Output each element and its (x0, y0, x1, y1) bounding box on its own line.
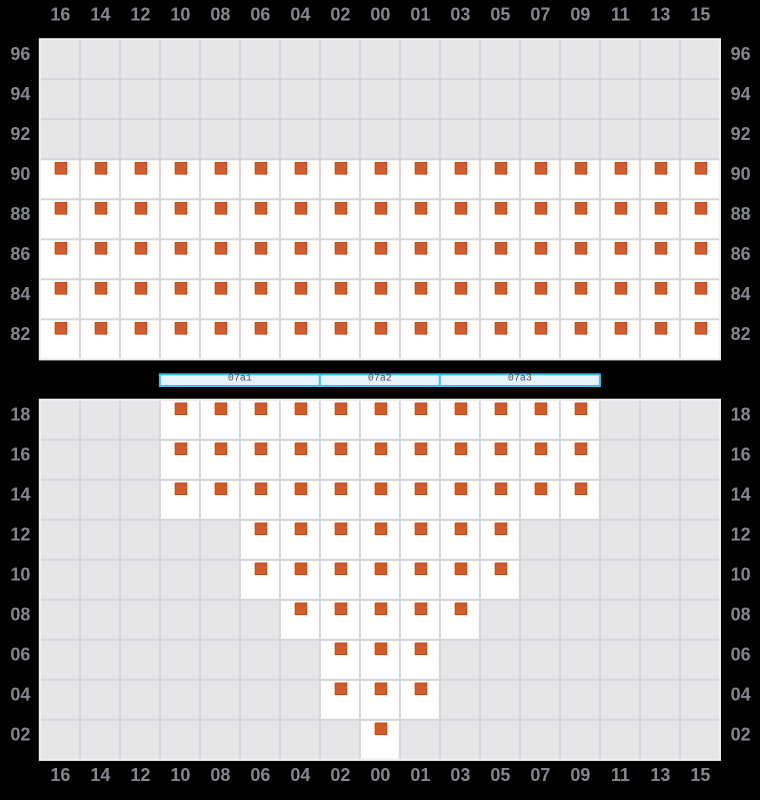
svg-text:00: 00 (370, 4, 390, 24)
svg-text:88: 88 (731, 204, 751, 224)
svg-text:08: 08 (10, 604, 30, 624)
svg-text:06: 06 (10, 644, 30, 664)
svg-text:06: 06 (731, 644, 751, 664)
svg-text:18: 18 (731, 404, 751, 424)
svg-text:08: 08 (210, 4, 230, 24)
svg-text:05: 05 (490, 765, 510, 785)
svg-text:11: 11 (611, 4, 630, 24)
svg-text:18: 18 (10, 404, 30, 424)
svg-text:01: 01 (410, 765, 430, 785)
svg-text:05: 05 (490, 4, 510, 24)
svg-text:10: 10 (170, 4, 190, 24)
svg-text:12: 12 (731, 524, 751, 544)
svg-text:92: 92 (10, 124, 30, 144)
svg-text:07a1: 07a1 (228, 373, 252, 384)
svg-text:14: 14 (90, 4, 110, 24)
svg-text:07a3: 07a3 (508, 373, 532, 384)
svg-text:09: 09 (570, 765, 590, 785)
svg-text:00: 00 (370, 765, 390, 785)
svg-text:08: 08 (210, 765, 230, 785)
svg-text:01: 01 (410, 4, 430, 24)
svg-text:96: 96 (10, 44, 30, 64)
svg-text:84: 84 (10, 284, 30, 304)
svg-text:15: 15 (690, 4, 710, 24)
svg-text:13: 13 (650, 4, 670, 24)
svg-text:16: 16 (10, 444, 30, 464)
svg-text:15: 15 (690, 765, 710, 785)
svg-text:82: 82 (10, 324, 30, 344)
svg-text:14: 14 (90, 765, 110, 785)
svg-text:10: 10 (731, 564, 751, 584)
svg-text:10: 10 (170, 765, 190, 785)
svg-text:04: 04 (731, 684, 751, 704)
svg-text:12: 12 (10, 524, 30, 544)
svg-text:04: 04 (290, 765, 310, 785)
svg-text:07a2: 07a2 (368, 373, 392, 384)
svg-text:90: 90 (731, 164, 751, 184)
svg-text:94: 94 (731, 84, 751, 104)
svg-text:03: 03 (450, 4, 470, 24)
svg-text:13: 13 (650, 765, 670, 785)
svg-text:96: 96 (731, 44, 751, 64)
svg-text:82: 82 (731, 324, 751, 344)
svg-text:02: 02 (330, 4, 350, 24)
svg-text:06: 06 (250, 4, 270, 24)
svg-text:08: 08 (731, 604, 751, 624)
svg-text:14: 14 (731, 484, 751, 504)
svg-text:16: 16 (50, 4, 70, 24)
svg-text:12: 12 (130, 765, 150, 785)
svg-text:14: 14 (10, 484, 30, 504)
svg-text:03: 03 (450, 765, 470, 785)
svg-text:02: 02 (10, 724, 30, 744)
svg-text:06: 06 (250, 765, 270, 785)
svg-text:16: 16 (50, 765, 70, 785)
svg-text:11: 11 (611, 765, 630, 785)
svg-text:16: 16 (731, 444, 751, 464)
svg-text:04: 04 (10, 684, 30, 704)
svg-text:02: 02 (330, 765, 350, 785)
svg-text:88: 88 (10, 204, 30, 224)
svg-text:90: 90 (10, 164, 30, 184)
svg-text:02: 02 (731, 724, 751, 744)
svg-text:12: 12 (130, 4, 150, 24)
svg-text:09: 09 (570, 4, 590, 24)
svg-text:07: 07 (530, 4, 550, 24)
svg-text:86: 86 (731, 244, 751, 264)
svg-text:86: 86 (10, 244, 30, 264)
svg-text:04: 04 (290, 4, 310, 24)
svg-text:10: 10 (10, 564, 30, 584)
svg-text:07: 07 (530, 765, 550, 785)
svg-text:84: 84 (731, 284, 751, 304)
svg-text:94: 94 (10, 84, 30, 104)
svg-text:92: 92 (731, 124, 751, 144)
